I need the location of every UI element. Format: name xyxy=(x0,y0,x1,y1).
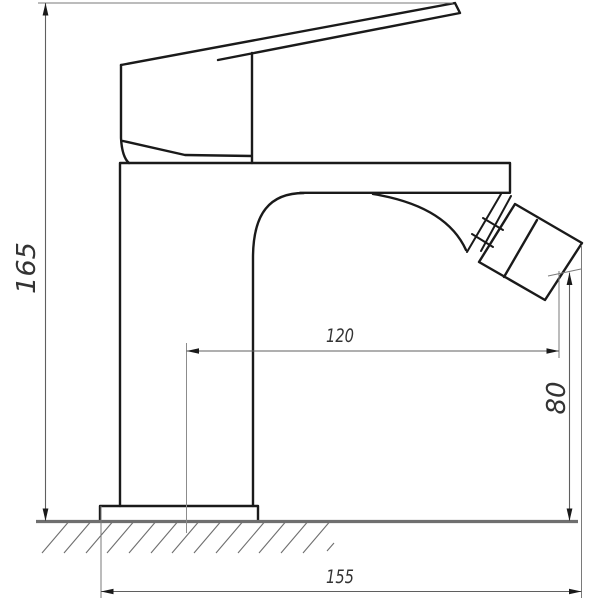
arrowhead-right xyxy=(547,348,560,354)
arrowhead-up xyxy=(567,273,573,286)
spout-body xyxy=(120,163,510,506)
technical-drawing-page: 165 120 80 155 xyxy=(0,0,600,600)
technical-drawing-canvas: 165 120 80 155 xyxy=(0,0,600,600)
arrowhead-down xyxy=(567,509,573,522)
arrowhead-left xyxy=(187,348,200,354)
dimension-overall-height: 165 xyxy=(12,3,453,521)
ground-hatching xyxy=(42,523,334,554)
handle-body xyxy=(121,53,252,163)
faucet-outline xyxy=(100,3,582,521)
arrowhead-up xyxy=(43,3,49,16)
arrowhead-left xyxy=(101,589,114,595)
dimension-overall-length: 155 xyxy=(101,245,582,598)
aerator-nozzle xyxy=(479,204,582,300)
dimension-spout-reach: 120 xyxy=(187,271,560,533)
arrowhead-down xyxy=(43,509,49,522)
dimension-label-155: 155 xyxy=(326,566,354,588)
lever-handle-blade xyxy=(121,3,460,65)
dimension-outlet-height: 80 xyxy=(542,269,581,521)
dimension-label-120: 120 xyxy=(326,325,354,347)
arrowhead-right xyxy=(569,589,582,595)
dimension-label-80: 80 xyxy=(542,382,572,415)
base-plate xyxy=(100,506,258,521)
dimension-label-165: 165 xyxy=(12,242,42,294)
